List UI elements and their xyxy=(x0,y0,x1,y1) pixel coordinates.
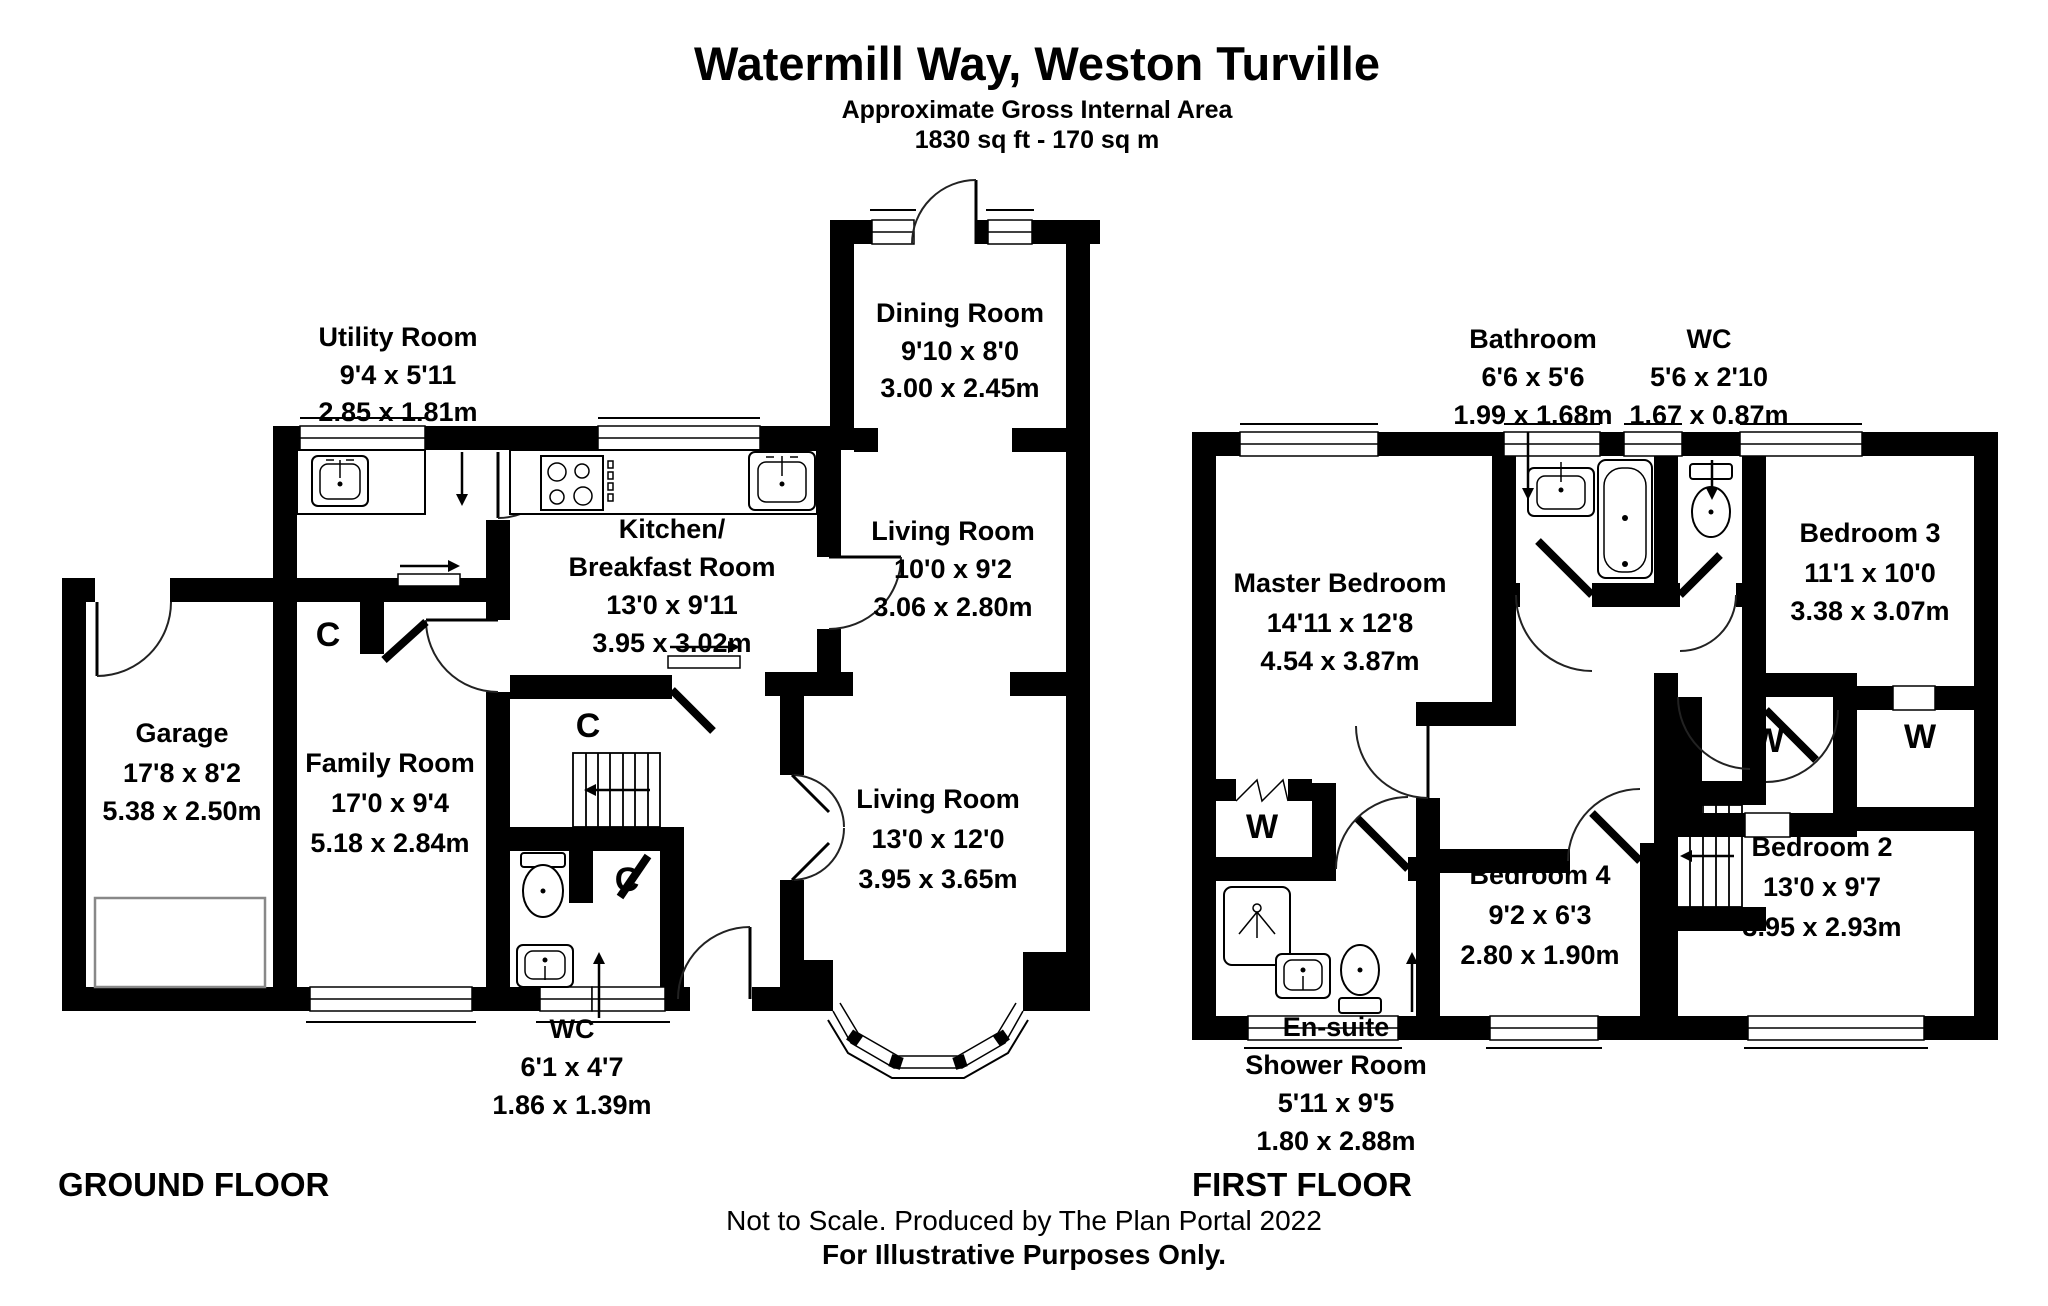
window xyxy=(310,987,472,1011)
room-label-family: Family Room 17'0 x 9'4 5.18 x 2.84m xyxy=(305,748,475,858)
room-dim-metric: 1.99 x 1.68m xyxy=(1453,400,1612,430)
footer: Not to Scale. Produced by The Plan Porta… xyxy=(726,1205,1322,1270)
room-label-living2: Living Room 13'0 x 12'0 3.95 x 3.65m xyxy=(856,784,1020,894)
room-name: En-suite xyxy=(1283,1012,1390,1042)
room-name: Family Room xyxy=(305,748,475,778)
room-name: Bedroom 3 xyxy=(1799,518,1940,548)
window xyxy=(1744,1016,1928,1048)
window xyxy=(540,987,592,1011)
window xyxy=(1240,424,1378,456)
room-name: Bedroom 2 xyxy=(1751,832,1892,862)
room-dim-metric: 1.67 x 0.87m xyxy=(1629,400,1788,430)
toilet-icon xyxy=(521,853,565,917)
room-dim-imperial: 9'2 x 6'3 xyxy=(1489,900,1592,930)
room-label-living1: Living Room 10'0 x 9'2 3.06 x 2.80m xyxy=(871,516,1035,622)
room-name: Garage xyxy=(135,718,228,748)
sink-icon xyxy=(1528,462,1594,516)
cupboard-letter: C xyxy=(316,616,341,654)
ensuite-door-arc xyxy=(1336,797,1408,869)
room-label-kitchen: Kitchen/ Breakfast Room 13'0 x 9'11 3.95… xyxy=(568,514,775,658)
room-name: WC xyxy=(1687,324,1732,354)
sink-icon xyxy=(517,945,573,987)
room-dim-imperial: 13'0 x 9'7 xyxy=(1763,872,1881,902)
footer-disclaimer: For Illustrative Purposes Only. xyxy=(822,1239,1226,1270)
room-label-bedroom4: Bedroom 4 9'2 x 6'3 2.80 x 1.90m xyxy=(1460,860,1619,970)
footer-note: Not to Scale. Produced by The Plan Porta… xyxy=(726,1205,1322,1236)
bathroom-door-arc xyxy=(1516,541,1592,671)
room-name: Living Room xyxy=(856,784,1020,814)
room-name: WC xyxy=(550,1014,595,1044)
room-dim-metric: 2.80 x 1.90m xyxy=(1460,940,1619,970)
stairs xyxy=(573,753,660,827)
room-dim-imperial: 13'0 x 9'11 xyxy=(606,590,737,620)
cupboard-letter: C xyxy=(615,861,640,899)
bathtub-icon xyxy=(1598,460,1652,578)
room-dim-metric: 3.38 x 3.07m xyxy=(1790,596,1949,626)
room-dim-imperial: 17'0 x 9'4 xyxy=(331,788,449,818)
sink-icon xyxy=(1276,954,1330,998)
garage-door xyxy=(95,898,265,987)
floorplan-canvas: Watermill Way, Weston Turville Approxima… xyxy=(0,0,2048,1306)
wardrobe-opening xyxy=(1893,686,1935,710)
room-dim-imperial: 5'6 x 2'10 xyxy=(1650,362,1768,392)
room-dim-imperial: 10'0 x 9'2 xyxy=(894,554,1012,584)
window xyxy=(1486,1016,1602,1048)
room-label-bedroom2: Bedroom 2 13'0 x 9'7 3.95 x 2.93m xyxy=(1742,832,1901,942)
room-dim-metric: 1.86 x 1.39m xyxy=(492,1090,651,1120)
room-dim-imperial: 11'1 x 10'0 xyxy=(1804,558,1935,588)
bay-window xyxy=(828,1003,1028,1078)
wardrobe-letter: W xyxy=(1904,718,1937,756)
page-area: 1830 sq ft - 170 sq m xyxy=(915,126,1160,154)
room-name: Living Room xyxy=(871,516,1035,546)
hob-icon xyxy=(541,456,613,510)
page-subtitle: Approximate Gross Internal Area xyxy=(842,96,1234,124)
wardrobe-letter: W xyxy=(1752,722,1785,760)
window xyxy=(986,210,1034,244)
header: Watermill Way, Weston Turville Approxima… xyxy=(694,37,1380,154)
page-title: Watermill Way, Weston Turville xyxy=(694,37,1380,90)
family-room-door-arc xyxy=(426,620,498,692)
room-name: Master Bedroom xyxy=(1233,568,1446,598)
room-dim-imperial: 13'0 x 12'0 xyxy=(872,824,1005,854)
room-dim-metric: 3.06 x 2.80m xyxy=(873,592,1032,622)
garage-door-arc xyxy=(97,602,171,676)
window xyxy=(870,210,916,244)
room-label-bedroom3: Bedroom 3 11'1 x 10'0 3.38 x 3.07m xyxy=(1790,518,1949,626)
room-dim-metric: 3.95 x 2.93m xyxy=(1742,912,1901,942)
room-name: Shower Room xyxy=(1245,1050,1427,1080)
wc-door-arc xyxy=(1680,555,1736,651)
window xyxy=(598,418,760,450)
kitchen-counter xyxy=(510,450,817,514)
room-label-ensuite: En-suite Shower Room 5'11 x 9'5 1.80 x 2… xyxy=(1245,952,1427,1156)
room-dim-imperial: 6'6 x 5'6 xyxy=(1482,362,1585,392)
room-dim-metric: 3.95 x 3.65m xyxy=(858,864,1017,894)
room-label-dining: Dining Room 9'10 x 8'0 3.00 x 2.45m xyxy=(876,298,1044,403)
room-dim-metric: 4.54 x 3.87m xyxy=(1260,646,1419,676)
cupboard-door xyxy=(672,690,713,731)
room-name: Dining Room xyxy=(876,298,1044,328)
bifold-wardrobe-doors xyxy=(1236,780,1288,801)
front-door-arc xyxy=(912,180,976,244)
room-dim-imperial: 17'8 x 8'2 xyxy=(123,758,241,788)
room-dim-imperial: 6'1 x 4'7 xyxy=(521,1052,624,1082)
sink-icon xyxy=(312,456,368,506)
room-dim-metric: 3.00 x 2.45m xyxy=(880,373,1039,403)
cupboard-letter: C xyxy=(576,707,601,745)
room-dim-metric: 1.80 x 2.88m xyxy=(1256,1126,1415,1156)
room-label-garage: Garage 17'8 x 8'2 5.38 x 2.50m xyxy=(102,718,261,826)
utility-counter xyxy=(297,450,425,514)
room-name: Bathroom xyxy=(1469,324,1597,354)
label-arrow xyxy=(456,452,468,506)
room-name: Bedroom 4 xyxy=(1469,860,1610,890)
sink-icon xyxy=(749,452,815,510)
bedroom4-door-arc xyxy=(1568,789,1640,861)
ground-floor-title: GROUND FLOOR xyxy=(58,1166,329,1203)
wardrobe-letter: W xyxy=(1246,808,1279,846)
room-dim-imperial: 5'11 x 9'5 xyxy=(1278,1088,1394,1118)
room-dim-metric: 5.38 x 2.50m xyxy=(102,796,261,826)
room-name: Utility Room xyxy=(319,322,478,352)
master-door-arc xyxy=(1356,726,1428,798)
toilet-icon xyxy=(1339,945,1381,1013)
room-dim-metric: 2.85 x 1.81m xyxy=(318,397,477,427)
room-dim-metric: 5.18 x 2.84m xyxy=(310,828,469,858)
room-name: Kitchen/ xyxy=(619,514,726,544)
direction-arrow xyxy=(398,560,460,586)
living-room-double-doors xyxy=(792,775,844,880)
room-dim-imperial: 9'4 x 5'11 xyxy=(340,360,456,390)
room-dim-imperial: 9'10 x 8'0 xyxy=(901,336,1019,366)
first-floor-title: FIRST FLOOR xyxy=(1192,1166,1412,1203)
cupboard-door xyxy=(384,622,426,660)
room-dim-imperial: 14'11 x 12'8 xyxy=(1267,608,1413,638)
room-label-master: Master Bedroom 14'11 x 12'8 4.54 x 3.87m xyxy=(1233,568,1446,676)
room-dim-metric: 3.95 x 3.02m xyxy=(592,628,751,658)
room-name: Breakfast Room xyxy=(568,552,775,582)
window xyxy=(592,987,665,1011)
